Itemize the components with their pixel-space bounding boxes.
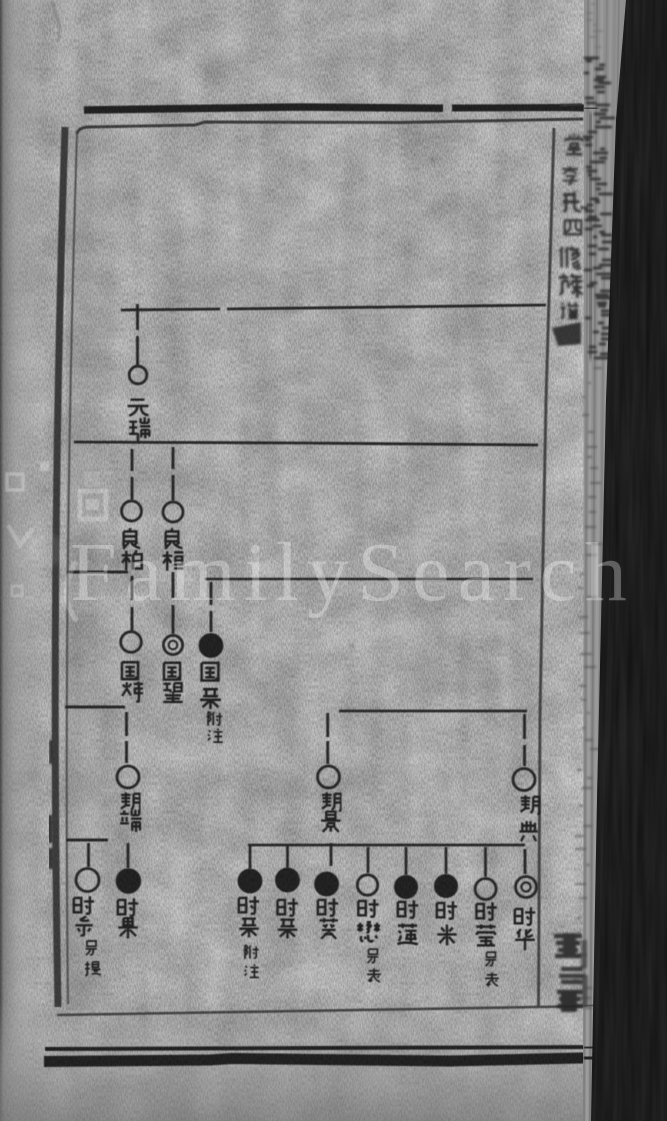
- svg-text:FamilySearch: FamilySearch: [70, 526, 635, 619]
